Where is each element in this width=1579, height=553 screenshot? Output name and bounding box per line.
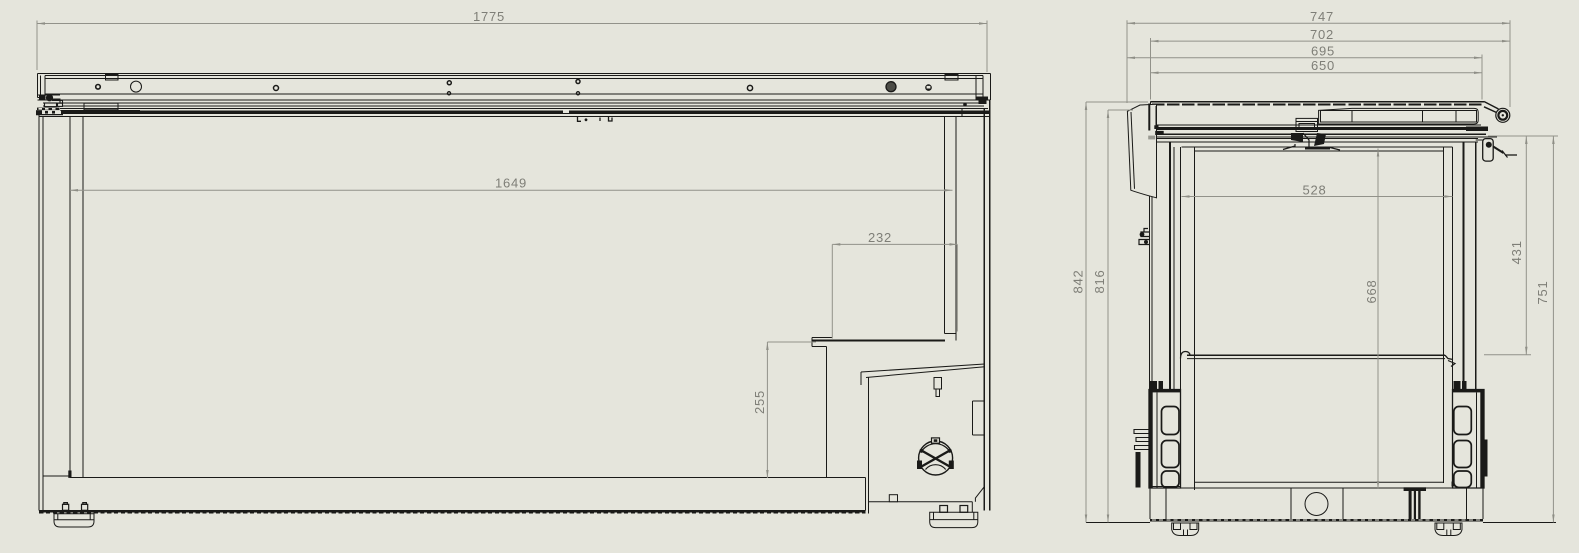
svg-text:842: 842 xyxy=(1071,269,1086,293)
svg-text:702: 702 xyxy=(1310,27,1334,42)
svg-text:650: 650 xyxy=(1311,58,1335,73)
svg-text:431: 431 xyxy=(1509,240,1524,264)
svg-text:232: 232 xyxy=(868,230,892,245)
svg-text:668: 668 xyxy=(1364,279,1379,303)
svg-text:1775: 1775 xyxy=(473,9,505,24)
svg-text:255: 255 xyxy=(752,390,767,414)
svg-text:747: 747 xyxy=(1310,9,1334,24)
svg-text:695: 695 xyxy=(1311,43,1335,58)
svg-text:751: 751 xyxy=(1535,280,1550,304)
svg-text:816: 816 xyxy=(1092,269,1107,293)
svg-text:528: 528 xyxy=(1302,183,1326,198)
svg-text:1649: 1649 xyxy=(495,176,527,191)
